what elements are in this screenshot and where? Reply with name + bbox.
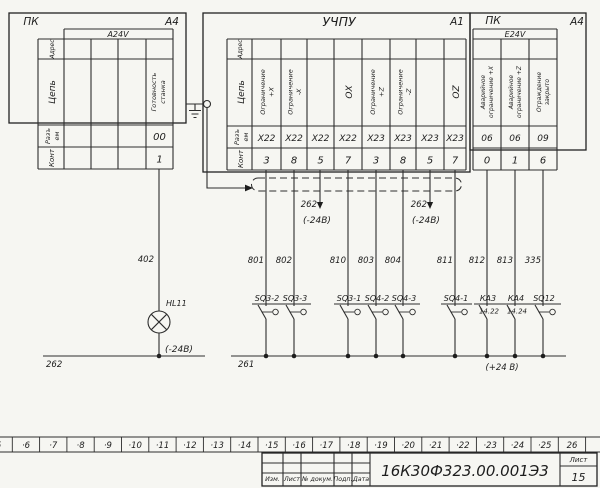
bus-261: 261 (+24 В)	[231, 354, 566, 373]
wire-number: 803	[358, 256, 374, 266]
switch-sq3-3: SQ3-3	[280, 294, 311, 319]
tap-voltage: (-24В)	[412, 216, 440, 226]
circuit-limit-minus-x: Ограничение	[287, 69, 295, 114]
ruler-cell: ·25	[538, 441, 552, 451]
uchpu-block: УЧПУ А1 Адрес Цепь Разъ ем Конт Ограниче…	[186, 13, 470, 191]
titleblock-col-list: Лист	[283, 476, 300, 483]
pin-cell: 0	[484, 156, 490, 167]
circuit-limit-plus-x: +X	[268, 87, 276, 97]
relay-contact-ka3: КА3 14.22	[474, 294, 504, 319]
connector-cell: X22	[284, 134, 303, 144]
connector-cell: 06	[509, 134, 521, 144]
pin-cell: 3	[263, 156, 269, 167]
tap-wire-number: 262	[411, 200, 427, 210]
pk-left-connector-header: A24V	[106, 30, 129, 39]
titleblock-col-izm: Изм.	[265, 476, 280, 483]
titleblock-col-data: Дата	[352, 476, 369, 483]
circuit-guard-closed: закрыто	[544, 79, 551, 106]
connector-cell: X23	[445, 134, 464, 144]
title-block: Изм. Лист № докум. Подп. Дата 16К30Ф323.…	[262, 453, 597, 486]
pk-right-title: ПК	[485, 15, 501, 27]
switch-sq3-1: SQ3-1	[334, 294, 365, 319]
ruler-cell: ·14	[238, 441, 252, 451]
uchpu-title: УЧПУ	[322, 14, 357, 29]
signal-ready-pin: 1	[156, 155, 162, 166]
ruler-cell: ·22	[456, 441, 470, 451]
ruler-cell: ·23	[483, 441, 497, 451]
uchpu-table: Адрес Цепь Разъ ем Конт Ограничение +X О…	[227, 39, 466, 170]
pin-cell: 1	[512, 156, 518, 167]
ruler-cell: ·11	[156, 441, 170, 451]
circuit-limit-minus-x: -X	[295, 88, 303, 95]
switch-sq4-2: SQ4-2	[362, 294, 393, 319]
titleblock-col-dokum: № докум.	[301, 476, 333, 483]
ruler-cell: ·17	[320, 441, 334, 451]
switch-label: SQ3-2	[255, 294, 279, 303]
row-label-circuit: Цепь	[237, 80, 247, 104]
signal-wires: 262 (-24В) 262 (-24В) 801 802 810 803 80…	[248, 170, 543, 356]
circuit-limit-plus-z: +Z	[378, 87, 386, 97]
ruler-cell: ·8	[77, 441, 86, 451]
ground-terminal	[186, 101, 253, 192]
relay-label: КА3	[480, 294, 496, 303]
switch-sq3-2: SQ3-2	[252, 294, 283, 319]
row-label-address: Адрес	[49, 39, 56, 60]
tap-voltage: (-24В)	[303, 216, 331, 226]
ruler-cell: ·7	[49, 441, 58, 451]
connector-cell: X23	[420, 134, 439, 144]
pk-left-table: A24V Адрес Цепь Разъ ем Конт Готовность …	[38, 29, 173, 169]
ruler-cell: ·18	[347, 441, 361, 451]
switch-sq12: SQ12	[529, 294, 561, 319]
bus-262-label: 262	[46, 360, 62, 370]
ruler-cell: ·24	[511, 441, 525, 451]
uchpu-zone: А1	[449, 16, 464, 28]
bus-261-label: 261	[238, 360, 254, 370]
ruler-cell: ·15	[265, 441, 279, 451]
row-label-contact: Конт	[237, 149, 245, 168]
relay-label: КА4	[508, 294, 524, 303]
pk-right-connector-header: E24V	[505, 30, 526, 39]
ruler-cell: ·16	[292, 441, 306, 451]
ruler-cell: ·21	[429, 441, 443, 451]
ruler-cell: ·20	[401, 441, 415, 451]
circuit-limit-plus-x: Ограничение	[259, 69, 267, 114]
switch-sq4-1: SQ4-1	[441, 294, 472, 319]
switch-label: SQ4-2	[365, 294, 389, 303]
row-label-address: Адрес	[237, 39, 244, 60]
relay-contact-ka4: КА4 14.24	[502, 294, 532, 319]
pk-left-title: ПК	[23, 16, 39, 28]
relay-address: 14.24	[507, 308, 527, 316]
wire-number: 804	[385, 256, 401, 266]
titleblock-col-podp: Подп.	[333, 476, 352, 483]
circuit-guard-closed: Ограждение	[536, 72, 543, 112]
pin-cell: 5	[317, 156, 323, 167]
doc-number: 16К30Ф323.00.001Э3	[381, 462, 549, 480]
lamp-branch: 402 HL11 (-24В)	[138, 169, 193, 358]
pk-left-zone: А4	[164, 16, 179, 28]
ruler-cell: ·10	[128, 441, 142, 451]
wire-number: 402	[138, 255, 154, 265]
connector-cell: X22	[311, 134, 330, 144]
signal-ready-line1: Готовность	[150, 73, 158, 112]
wire-number: 802	[276, 256, 292, 266]
pk-left-block: ПК А4 A24V Адрес Цепь Разъ ем Конт Готов…	[9, 13, 186, 169]
sheet-number: 15	[572, 471, 586, 484]
row-label-connector: ем	[242, 132, 250, 141]
wire-number: 335	[525, 256, 541, 266]
row-label-contact: Конт	[48, 148, 56, 167]
pin-cell: 5	[427, 156, 433, 167]
ruler-cell: 26	[567, 441, 578, 451]
circuit-emerg-limit-z: Аварийное	[508, 75, 515, 111]
lamp-icon	[148, 311, 170, 333]
wire-number: 810	[330, 256, 346, 266]
connector-cell: 09	[537, 134, 549, 144]
sheet-label: Лист	[569, 456, 589, 464]
lamp-label: HL11	[166, 299, 187, 308]
circuit-emerg-limit-x: Аварийное	[480, 75, 487, 111]
circuit-limit-minus-z: -Z	[405, 88, 413, 95]
switch-label: SQ12	[533, 294, 555, 303]
connector-cell: 06	[481, 134, 493, 144]
bus-plus24-label: (+24 В)	[485, 363, 518, 373]
tap-wire-number: 262	[301, 200, 317, 210]
wire-number: 801	[248, 256, 264, 266]
circuit-0z: ОZ	[452, 85, 462, 99]
row-label-connector: Разъ	[233, 129, 241, 145]
circuit-emerg-limit-z: ограничение +Z	[516, 65, 523, 118]
row-label-connector: Разъ	[44, 128, 52, 144]
pk-right-zone: А4	[569, 16, 584, 28]
bus-262: 262	[43, 356, 205, 370]
connector-cell: X22	[338, 134, 357, 144]
circuit-0x: ОХ	[345, 85, 355, 99]
switch-sq4-3: SQ4-3	[389, 294, 420, 319]
circuit-limit-minus-z: Ограничение	[397, 69, 405, 114]
circuit-limit-plus-z: Ограничение	[369, 69, 377, 114]
connector-cell: X23	[366, 134, 385, 144]
connector-cell: X23	[393, 134, 412, 144]
ruler-cell: 5	[0, 441, 1, 451]
ruler-cell: ·13	[210, 441, 224, 451]
wire-number: 811	[437, 256, 453, 266]
switch-label: SQ4-1	[444, 294, 468, 303]
switch-label: SQ3-1	[337, 294, 361, 303]
signal-ready-connector: 00	[153, 132, 166, 143]
relay-address: 14.22	[479, 308, 500, 316]
pin-cell: 8	[291, 156, 297, 167]
wire-number: 812	[469, 256, 485, 266]
schematic-sheet: ПК А4 A24V Адрес Цепь Разъ ем Конт Готов…	[0, 0, 600, 488]
ruler-cell: ·6	[22, 441, 31, 451]
ruler-cell: ·19	[374, 441, 388, 451]
connector-cell: X22	[257, 134, 276, 144]
pin-cell: 7	[452, 156, 459, 167]
wire-number: 813	[497, 256, 513, 266]
pk-right-block: ПК А4 E24V Аварийное ограничение +X Авар…	[470, 13, 586, 170]
pin-cell: 3	[373, 156, 379, 167]
row-label-connector: ем	[53, 131, 61, 140]
earth-ground-icon	[189, 104, 201, 118]
circuit-emerg-limit-x: ограничение +X	[488, 65, 495, 118]
switch-label: SQ4-3	[392, 294, 416, 303]
signal-ready-line2: станка	[159, 80, 167, 104]
row-label-circuit: Цепь	[48, 80, 58, 104]
ruler-cell: ·12	[183, 441, 197, 451]
pin-cell: 7	[345, 156, 352, 167]
lamp-voltage: (-24В)	[165, 345, 193, 355]
pk-right-table: E24V Аварийное ограничение +X Аварийное …	[473, 29, 557, 170]
ruler-cell: ·9	[104, 441, 112, 451]
switch-label: SQ3-3	[283, 294, 307, 303]
ruler-strip: 5 ·6 ·7 ·8 ·9 ·10 ·11 ·12 ·13 ·14 ·15 ·1…	[0, 437, 600, 452]
pin-cell: 6	[540, 156, 546, 167]
pin-cell: 8	[400, 156, 406, 167]
